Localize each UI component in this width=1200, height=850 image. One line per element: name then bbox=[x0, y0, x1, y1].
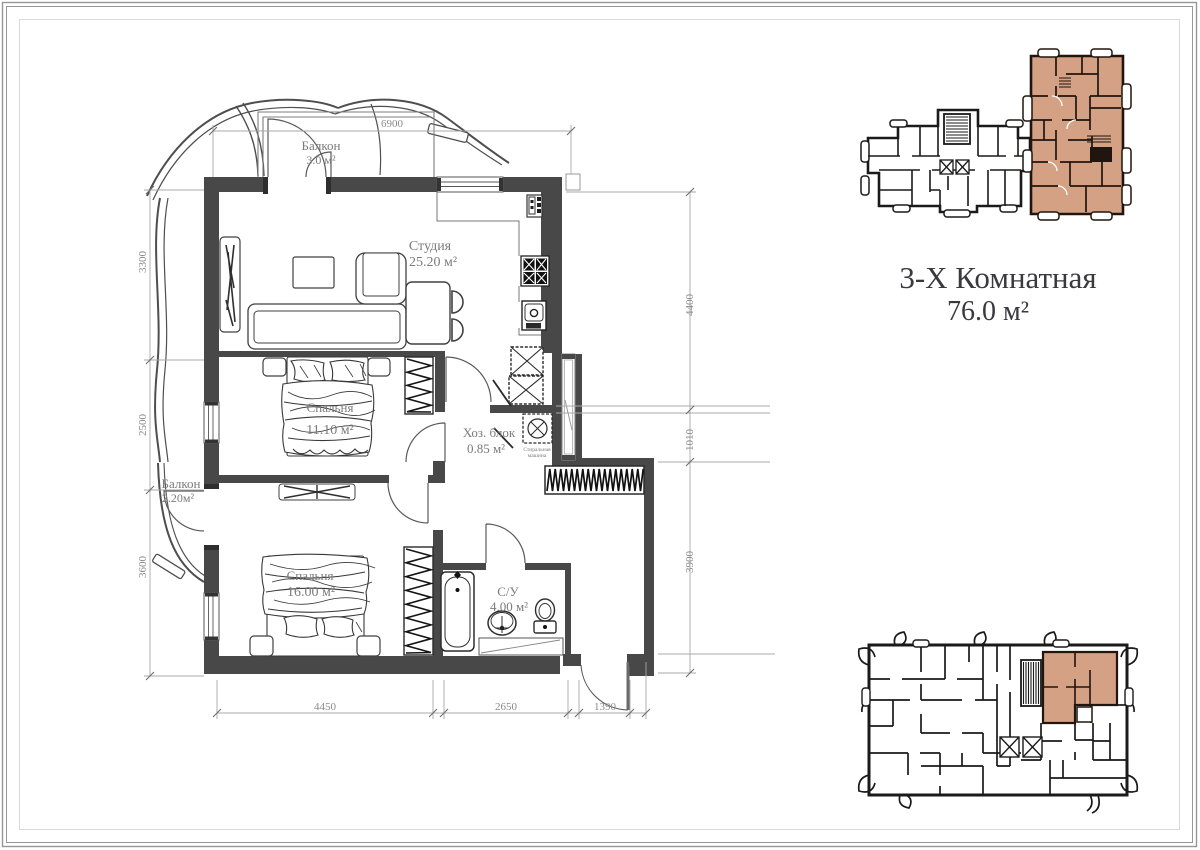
svg-text:С/У: С/У bbox=[497, 584, 519, 599]
svg-text:4450: 4450 bbox=[314, 701, 337, 713]
svg-text:3300: 3300 bbox=[137, 251, 149, 274]
svg-text:4400: 4400 bbox=[684, 294, 696, 317]
svg-text:2.20м²: 2.20м² bbox=[162, 491, 195, 505]
svg-text:Хоз. блок: Хоз. блок bbox=[463, 425, 516, 440]
svg-text:6900: 6900 bbox=[381, 118, 404, 130]
svg-text:4.00 м²: 4.00 м² bbox=[490, 599, 528, 614]
svg-text:1010: 1010 bbox=[684, 429, 696, 452]
svg-text:76.0 м²: 76.0 м² bbox=[947, 296, 1029, 327]
svg-text:3.0 м²: 3.0 м² bbox=[306, 153, 336, 167]
svg-text:16.00 м²: 16.00 м² bbox=[287, 585, 335, 600]
svg-text:Спальня: Спальня bbox=[307, 400, 354, 415]
svg-text:3900: 3900 bbox=[684, 551, 696, 574]
svg-text:Балкон: Балкон bbox=[302, 138, 341, 153]
svg-text:0.85 м²: 0.85 м² bbox=[467, 441, 505, 456]
svg-text:25.20 м²: 25.20 м² bbox=[409, 255, 457, 270]
svg-text:3600: 3600 bbox=[137, 556, 149, 579]
svg-text:2500: 2500 bbox=[137, 414, 149, 437]
svg-text:3-Х Комнатная: 3-Х Комнатная bbox=[899, 260, 1096, 295]
svg-text:Спальня: Спальня bbox=[287, 568, 334, 583]
svg-text:2650: 2650 bbox=[495, 701, 518, 713]
svg-text:машина: машина bbox=[528, 453, 547, 459]
svg-text:11.10 м²: 11.10 м² bbox=[306, 423, 354, 438]
svg-text:Балкон: Балкон bbox=[162, 476, 201, 491]
svg-text:Студия: Студия bbox=[409, 239, 452, 254]
svg-text:1390: 1390 bbox=[594, 701, 617, 713]
